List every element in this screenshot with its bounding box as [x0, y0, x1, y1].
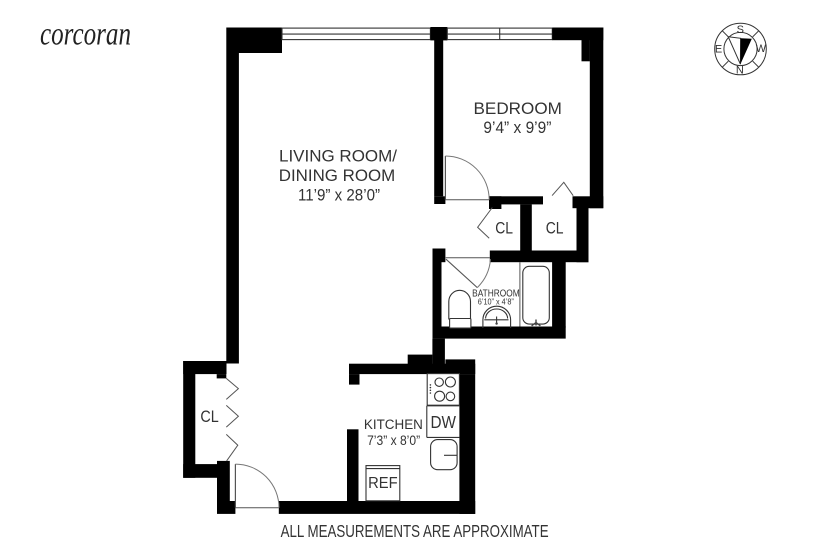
svg-text:9’4” x 9’9”: 9’4” x 9’9”: [483, 118, 551, 137]
svg-text:KITCHEN: KITCHEN: [364, 417, 423, 433]
svg-text:11’9” x 28’0”: 11’9” x 28’0”: [298, 185, 380, 204]
svg-text:CL: CL: [546, 220, 564, 238]
svg-text:ALL MEASUREMENTS ARE APPROXIMA: ALL MEASUREMENTS ARE APPROXIMATE: [281, 521, 549, 541]
svg-text:7’3” x 8’0”: 7’3” x 8’0”: [367, 433, 420, 448]
svg-text:6’10” x 4’8”: 6’10” x 4’8”: [478, 298, 514, 307]
svg-text:CL: CL: [200, 408, 218, 426]
svg-text:E: E: [715, 44, 722, 56]
svg-text:DINING ROOM: DINING ROOM: [279, 166, 396, 185]
svg-text:REF: REF: [368, 475, 398, 492]
svg-text:DW: DW: [430, 412, 456, 432]
svg-text:W: W: [756, 43, 767, 55]
svg-text:S: S: [737, 24, 744, 36]
svg-text:CL: CL: [495, 220, 513, 238]
svg-text:corcoran: corcoran: [40, 16, 131, 52]
svg-text:N: N: [736, 65, 744, 77]
svg-text:BEDROOM: BEDROOM: [474, 99, 562, 118]
svg-text:LIVING ROOM/: LIVING ROOM/: [279, 147, 397, 166]
